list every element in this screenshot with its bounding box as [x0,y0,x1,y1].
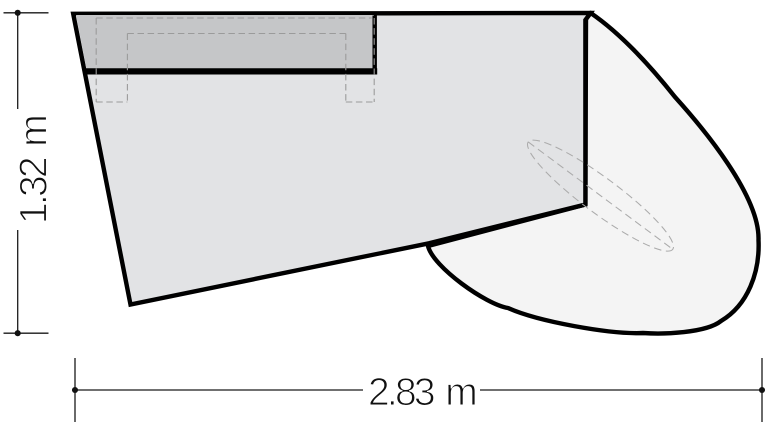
svg-text:2.83 m: 2.83 m [368,371,475,414]
svg-text:1.32 m: 1.32 m [12,117,55,224]
